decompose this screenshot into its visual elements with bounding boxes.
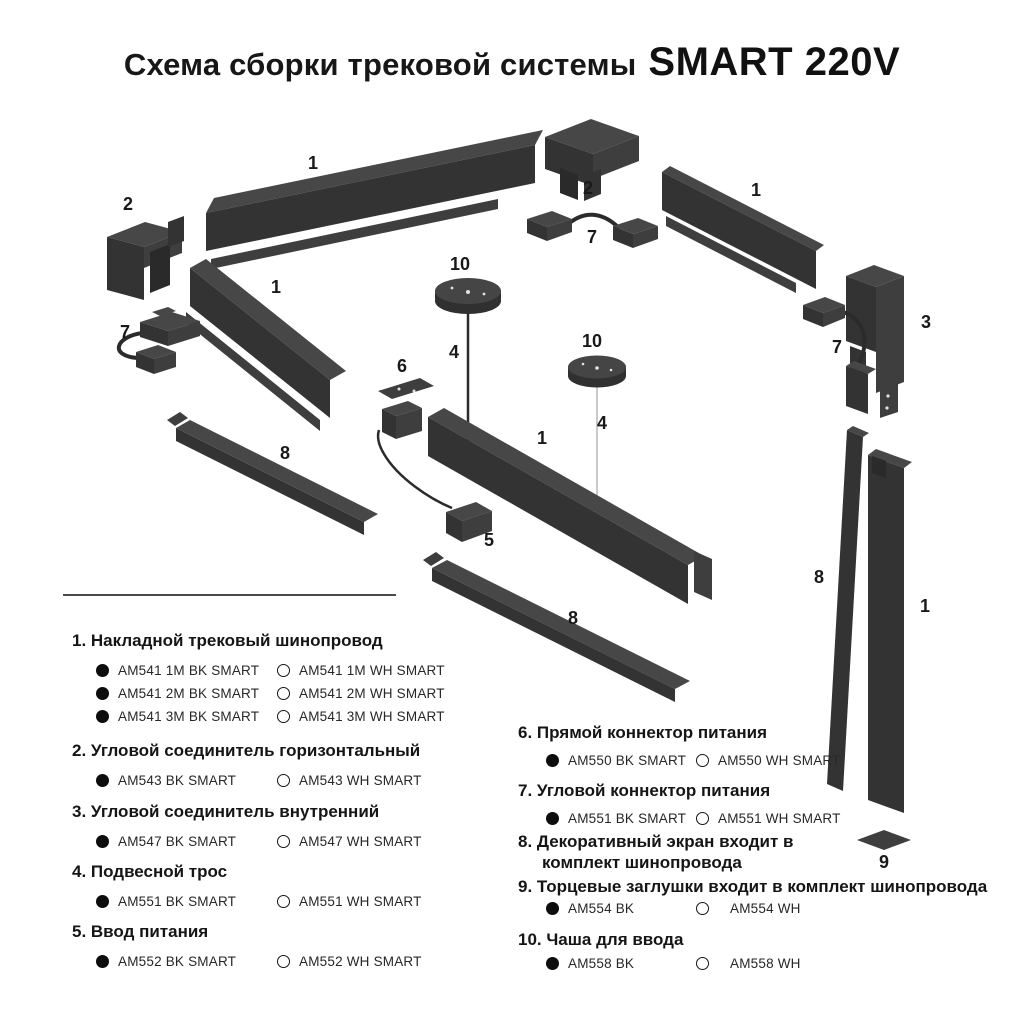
white-ring-icon [696,754,709,767]
black-dot-icon [546,812,559,825]
legend-heading-line2: комплект шинопровода [542,852,793,874]
variant-row: AM543 BK SMART AM543 WH SMART [66,769,422,792]
legend-item-9: 9. Торцевые заглушки входит в комплект ш… [512,876,987,920]
part-label-wire-center: 4 [449,343,459,361]
black-dot-icon [546,902,559,915]
variant-code-bk: AM551 BK SMART [118,894,236,909]
white-ring-icon [277,664,290,677]
part-label-conn6: 6 [397,357,407,375]
legend-item-7: 7. Угловой коннектор питания AM551 BK SM… [512,780,841,830]
part-label-conn7-top: 7 [587,228,597,246]
variant-code-bk: AM541 1M BK SMART [118,663,259,678]
legend-heading: 7. Угловой коннектор питания [518,780,841,801]
part-label-power-feed: 5 [484,531,494,549]
white-ring-icon [696,812,709,825]
white-ring-icon [277,835,290,848]
variant-row: AM558 BK AM558 WH [512,952,801,975]
legend-divider [63,594,396,596]
black-dot-icon [96,664,109,677]
variant-code-wh: AM541 1M WH SMART [299,663,445,678]
variant-code-bk: AM541 3M BK SMART [118,709,259,724]
black-dot-icon [96,895,109,908]
white-ring-icon [277,687,290,700]
legend-item-10: 10. Чаша для ввода AM558 BK AM558 WH [512,929,801,975]
white-ring-icon [696,902,709,915]
variant-code-bk: AM550 BK SMART [568,753,686,768]
variant-row: AM551 BK SMART AM551 WH SMART [512,807,841,830]
legend-heading: 1. Накладной трековый шинопровод [72,630,445,651]
white-ring-icon [277,710,290,723]
track-vertical [868,449,912,813]
legend-heading: 8. Декоративный экран входит в [518,831,793,852]
legend-item-2: 2. Угловой соединитель горизонтальный AM… [66,740,422,792]
variant-code-wh: AM541 2M WH SMART [299,686,445,701]
part-label-end-cap: 9 [879,853,889,871]
part-label-track-left: 1 [271,278,281,296]
part-label-screen-left: 8 [280,444,290,462]
part-label-screen-center: 8 [568,609,578,627]
corner-connector-left [107,216,184,300]
track-left [186,259,346,431]
part-label-track-topright: 1 [751,181,761,199]
legend-heading: 2. Угловой соединитель горизонтальный [72,740,422,761]
variant-code-wh: AM554 WH [730,901,801,916]
assembly-scheme-page: Схема сборки трековой системыSMART 220V [0,0,1024,1024]
variant-row: AM554 BK AM554 WH [512,897,987,920]
legend-item-5: 5. Ввод питания AM552 BK SMART AM552 WH … [66,921,422,973]
variant-code-wh: AM547 WH SMART [299,834,422,849]
straight-power-connector [378,378,434,439]
part-label-corner-inner: 3 [921,313,931,331]
part-label-conn7-left: 7 [120,323,130,341]
end-cap [857,830,911,850]
black-dot-icon [96,774,109,787]
variant-code-bk: AM541 2M BK SMART [118,686,259,701]
legend-item-8: 8. Декоративный экран входит в комплект … [512,831,793,874]
legend-heading: 6. Прямой коннектор питания [518,722,841,743]
variant-row: AM541 2M BK SMART AM541 2M WH SMART [66,682,445,705]
white-ring-icon [696,957,709,970]
part-label-screen-vert: 8 [814,568,824,586]
white-ring-icon [277,774,290,787]
legend-item-3: 3. Угловой соединитель внутренний AM547 … [66,801,422,853]
variant-row: AM552 BK SMART AM552 WH SMART [66,950,422,973]
variant-code-wh: AM550 WH SMART [718,753,841,768]
black-dot-icon [96,687,109,700]
variant-row: AM551 BK SMART AM551 WH SMART [66,890,422,913]
black-dot-icon [96,710,109,723]
part-label-track-top: 1 [308,154,318,172]
variant-code-wh: AM543 WH SMART [299,773,422,788]
variant-row: AM541 1M BK SMART AM541 1M WH SMART [66,659,445,682]
legend-heading: 5. Ввод питания [72,921,422,942]
variant-code-wh: AM552 WH SMART [299,954,422,969]
black-dot-icon [546,754,559,767]
legend-heading: 4. Подвесной трос [72,861,422,882]
variant-code-wh: AM541 3M WH SMART [299,709,445,724]
variant-code-wh: AM558 WH [730,956,801,971]
black-dot-icon [546,957,559,970]
legend-heading: 9. Торцевые заглушки входит в комплект ш… [518,876,987,897]
decorative-screen-left [167,412,378,535]
variant-row: AM541 3M BK SMART AM541 3M WH SMART [66,705,445,728]
variant-code-bk: AM543 BK SMART [118,773,236,788]
part-label-corner-left: 2 [123,195,133,213]
variant-code-bk: AM551 BK SMART [568,811,686,826]
part-label-corner-right: 2 [583,179,593,197]
legend-item-6: 6. Прямой коннектор питания AM550 BK SMA… [512,722,841,772]
variant-code-wh: AM551 WH SMART [718,811,841,826]
white-ring-icon [277,895,290,908]
legend-item-1: 1. Накладной трековый шинопровод AM541 1… [66,630,445,728]
black-dot-icon [96,955,109,968]
track-top [206,130,543,269]
white-ring-icon [277,955,290,968]
part-label-wire-right: 4 [597,414,607,432]
part-label-canopy-center: 10 [450,255,470,273]
legend-heading: 3. Угловой соединитель внутренний [72,801,422,822]
variant-row: AM547 BK SMART AM547 WH SMART [66,830,422,853]
part-label-conn7-right: 7 [832,338,842,356]
variant-row: AM550 BK SMART AM550 WH SMART [512,749,841,772]
track-top-right [662,166,824,293]
variant-code-bk: AM558 BK [568,956,634,971]
variant-code-bk: AM554 BK [568,901,634,916]
variant-code-wh: AM551 WH SMART [299,894,422,909]
variant-code-bk: AM552 BK SMART [118,954,236,969]
legend-heading: 10. Чаша для ввода [518,929,801,950]
black-dot-icon [96,835,109,848]
legend-item-4: 4. Подвесной трос AM551 BK SMART AM551 W… [66,861,422,913]
variant-code-bk: AM547 BK SMART [118,834,236,849]
part-label-track-central: 1 [537,429,547,447]
part-label-track-vert: 1 [920,597,930,615]
part-label-canopy-right: 10 [582,332,602,350]
